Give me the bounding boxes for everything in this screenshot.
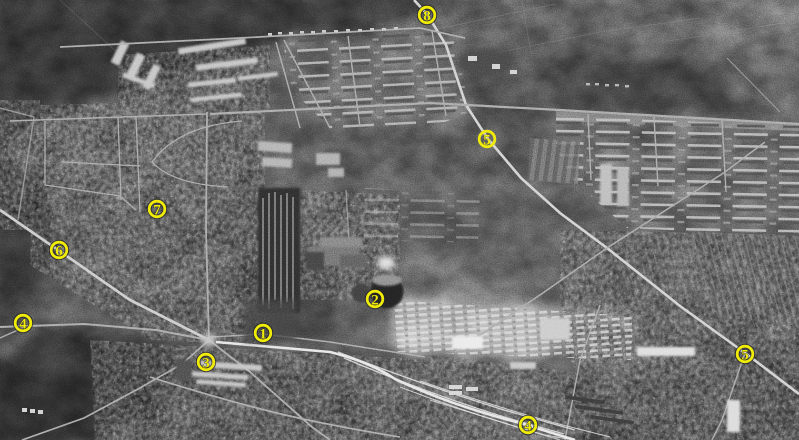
svg-text:7: 7 (153, 202, 161, 218)
svg-text:2: 2 (371, 292, 379, 308)
svg-text:3: 3 (202, 355, 210, 371)
svg-text:4: 4 (19, 316, 27, 332)
svg-text:4: 4 (524, 418, 532, 434)
svg-text:1: 1 (259, 326, 267, 342)
svg-text:5: 5 (483, 132, 491, 148)
svg-text:6: 6 (55, 243, 63, 259)
svg-text:5: 5 (741, 347, 749, 363)
svg-text:8: 8 (423, 8, 431, 24)
